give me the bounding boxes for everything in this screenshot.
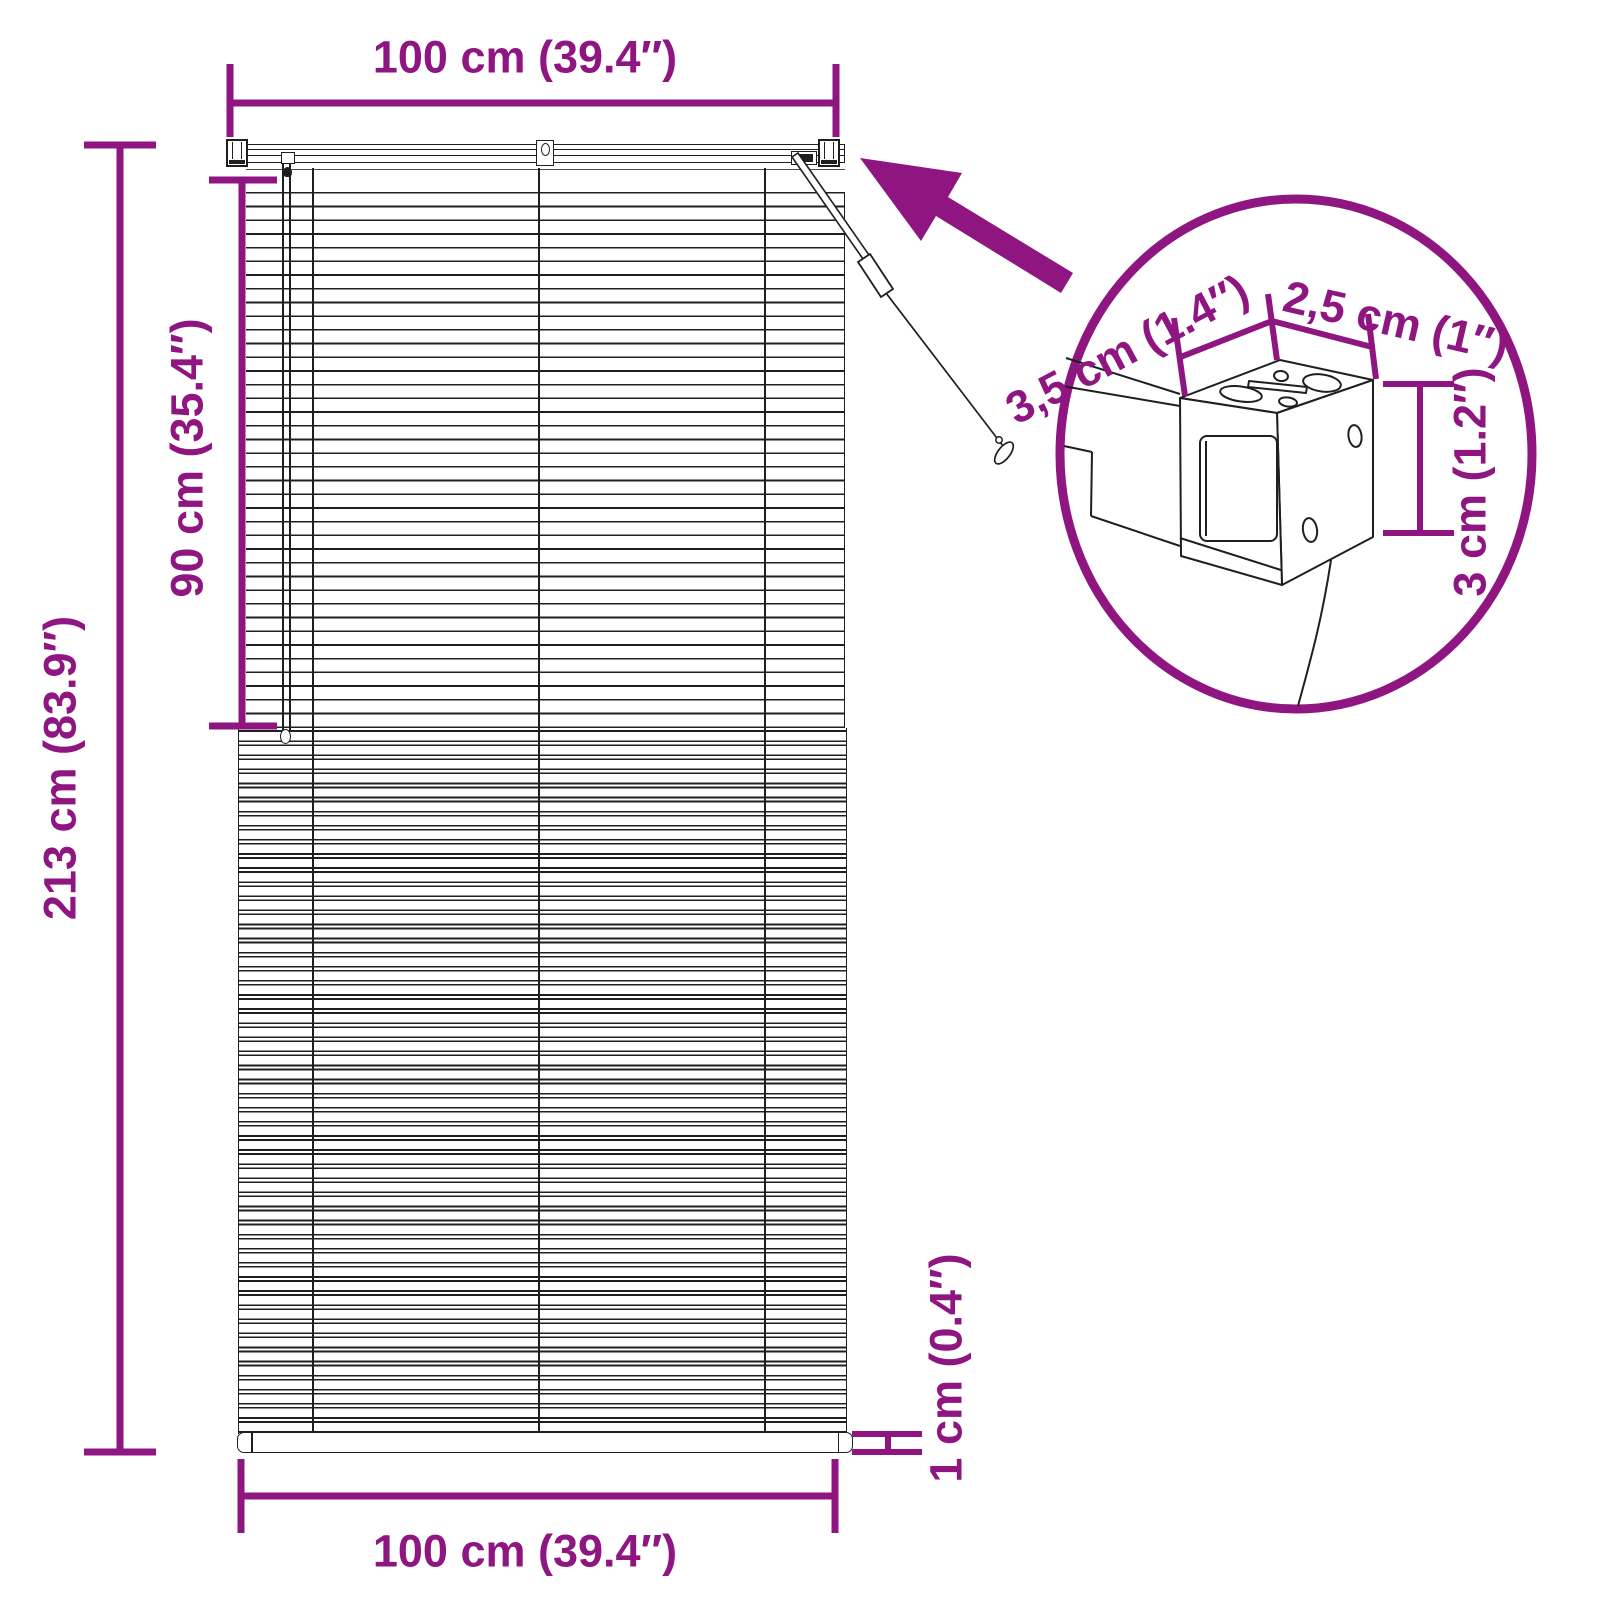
total-height-label: 213 cm (83.9″) [38,616,83,920]
raised-height-label: 90 cm (35.4″) [165,318,210,597]
top-width-label: 100 cm (39.4″) [373,35,677,80]
bottom-rail-height-label: 1 cm (0.4″) [924,1253,969,1482]
blind-dimension-diagram: 100 cm (39.4″) 213 cm (83.9″) 90 cm (35.… [0,0,1600,1600]
bottom-width-label: 100 cm (39.4″) [373,1529,677,1574]
bracket-depth-label: 3,5 cm (1.4″) [999,267,1256,432]
dimension-labels: 100 cm (39.4″) 213 cm (83.9″) 90 cm (35.… [0,0,1600,1600]
bracket-width-label: 2,5 cm (1″) [1279,273,1512,368]
bracket-height-label: 3 cm (1.2″) [1448,367,1493,596]
